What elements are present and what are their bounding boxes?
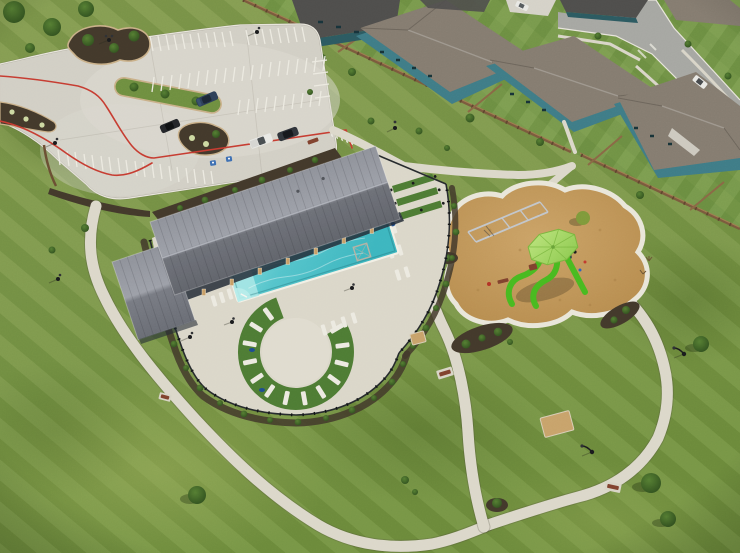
aerial-photo-community-amenity-center	[0, 0, 740, 553]
vignette	[0, 0, 740, 553]
aerial-scene	[0, 0, 740, 553]
